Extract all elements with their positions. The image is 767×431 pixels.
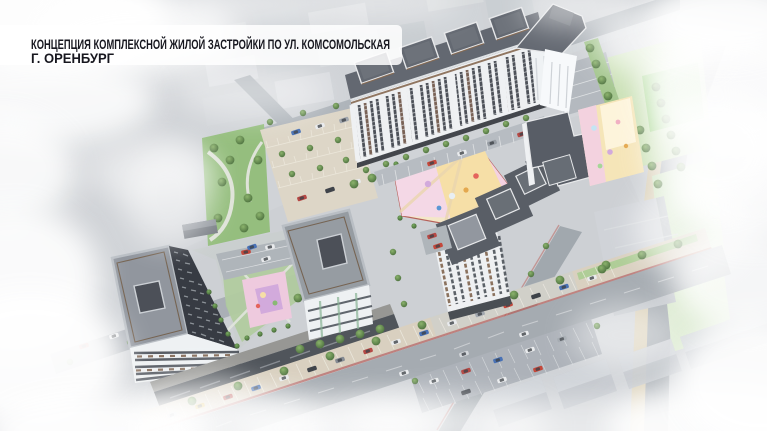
svg-text:Г. ОРЕНБУРГ: Г. ОРЕНБУРГ xyxy=(31,50,114,66)
